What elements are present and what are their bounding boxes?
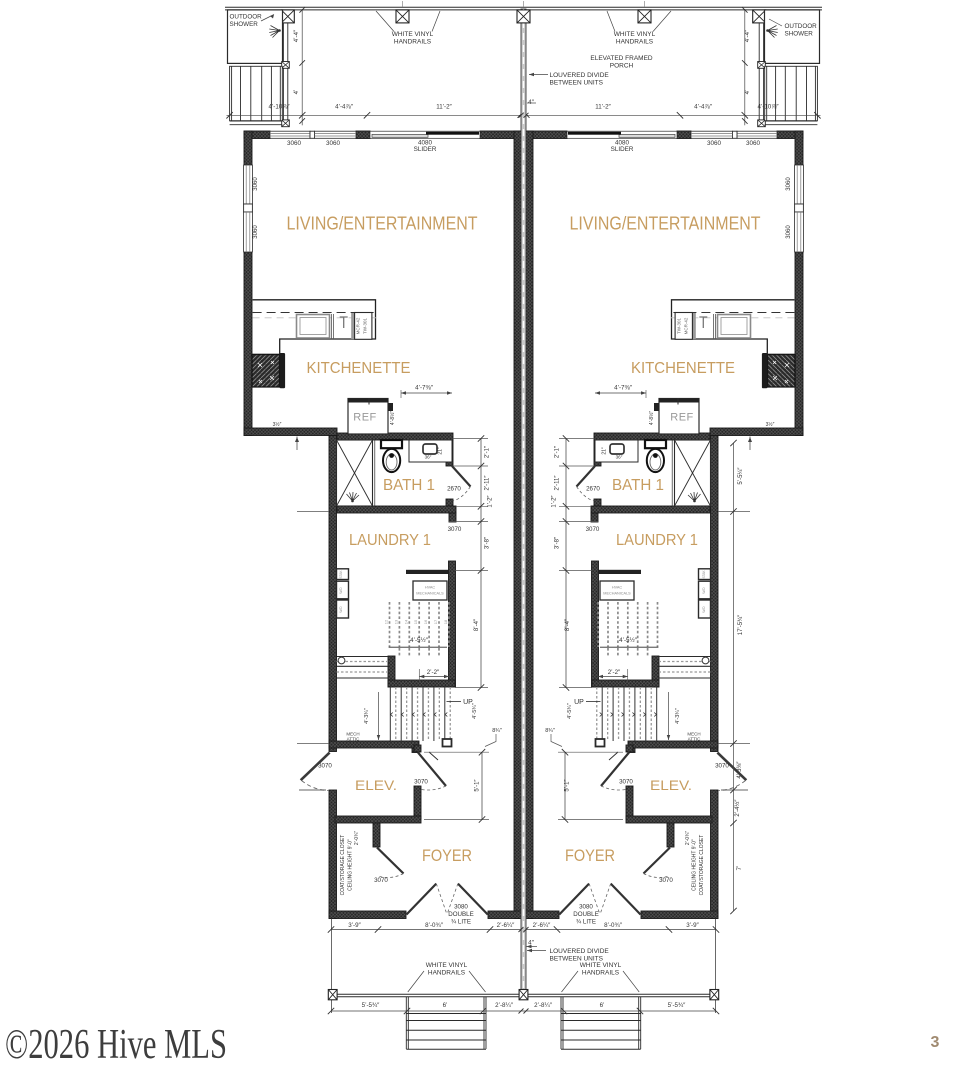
- svg-text:4’-7⅜″: 4’-7⅜″: [614, 385, 632, 392]
- svg-text:SHOWER: SHOWER: [785, 31, 814, 38]
- svg-text:4’: 4’: [744, 90, 751, 95]
- svg-text:3’-9″: 3’-9″: [686, 922, 699, 929]
- svg-text:REF: REF: [353, 412, 377, 424]
- svg-text:16: 16: [423, 619, 428, 624]
- svg-text:LOUVERED DIVIDE: LOUVERED DIVIDE: [550, 72, 610, 79]
- svg-text:4’-8½″: 4’-8½″: [648, 411, 655, 426]
- svg-text:HVAC: HVAC: [425, 586, 436, 590]
- svg-text:4’-8½″: 4’-8½″: [389, 411, 396, 426]
- svg-text:¾ LITE: ¾ LITE: [451, 919, 471, 926]
- svg-text:3’-9″: 3’-9″: [348, 922, 361, 929]
- svg-text:ATTIC: ATTIC: [347, 737, 360, 742]
- svg-text:8’-4″: 8’-4″: [565, 618, 571, 631]
- svg-text:2’-1″: 2’-1″: [485, 445, 491, 458]
- svg-text:SHOWER: SHOWER: [230, 21, 259, 28]
- svg-text:2’-2″: 2’-2″: [608, 669, 621, 676]
- svg-text:3060: 3060: [253, 225, 259, 239]
- svg-text:©2026 Hive MLS: ©2026 Hive MLS: [5, 1022, 227, 1068]
- svg-text:LIVING/ENTERTAINMENT: LIVING/ENTERTAINMENT: [287, 214, 478, 234]
- svg-text:12: 12: [384, 619, 389, 624]
- svg-text:4’-5½″: 4’-5½″: [619, 637, 637, 644]
- svg-text:1’-2″: 1’-2″: [552, 495, 558, 508]
- svg-text:ELEVATED FRAMED: ELEVATED FRAMED: [590, 55, 653, 62]
- svg-text:3060: 3060: [326, 140, 341, 147]
- svg-text:3060: 3060: [786, 225, 792, 239]
- svg-text:11’-2″: 11’-2″: [595, 104, 611, 111]
- svg-text:3070: 3070: [374, 877, 388, 884]
- svg-text:WHITE VINYL: WHITE VINYL: [392, 31, 434, 38]
- svg-text:OUTDOOR: OUTDOOR: [230, 14, 263, 21]
- svg-text:3060: 3060: [786, 177, 792, 191]
- svg-text:TW-301: TW-301: [363, 318, 368, 334]
- svg-text:CEILING HEIGHT 9’-0″: CEILING HEIGHT 9’-0″: [348, 839, 354, 891]
- svg-text:FOYER: FOYER: [565, 846, 615, 865]
- svg-text:BATH 1: BATH 1: [383, 477, 435, 494]
- svg-text:COAT/STORAGE CLOSET: COAT/STORAGE CLOSET: [699, 835, 705, 896]
- svg-text:2’-0¾″: 2’-0¾″: [685, 831, 691, 846]
- svg-text:6’: 6’: [600, 1002, 605, 1009]
- svg-text:3070: 3070: [448, 526, 462, 533]
- svg-text:3½″: 3½″: [273, 421, 282, 428]
- svg-text:2’-2″: 2’-2″: [427, 669, 440, 676]
- svg-text:2’-4½″: 2’-4½″: [734, 799, 741, 817]
- svg-text:3070: 3070: [586, 526, 600, 533]
- svg-text:5’-5¾″: 5’-5¾″: [362, 1002, 380, 1009]
- svg-text:ELEV.: ELEV.: [355, 777, 397, 793]
- svg-text:2’-1″: 2’-1″: [555, 445, 561, 458]
- svg-text:WHITE VINYL: WHITE VINYL: [426, 962, 468, 969]
- svg-text:UP: UP: [574, 699, 584, 706]
- svg-text:4’-5½″: 4’-5½″: [410, 637, 428, 644]
- svg-text:4’-4⅞″: 4’-4⅞″: [694, 104, 712, 111]
- svg-text:2670: 2670: [447, 486, 461, 493]
- svg-text:1’-2″: 1’-2″: [488, 495, 494, 508]
- svg-text:4’-10⅞″: 4’-10⅞″: [268, 104, 290, 111]
- svg-text:6’: 6’: [443, 1002, 448, 1009]
- svg-text:WHITE VINYL: WHITE VINYL: [614, 31, 656, 38]
- svg-text:BETWEEN UNITS: BETWEEN UNITS: [550, 80, 604, 87]
- svg-text:3080: 3080: [454, 904, 468, 911]
- svg-text:2’-0¾″: 2’-0¾″: [354, 831, 360, 846]
- svg-text:HANDRAILS: HANDRAILS: [616, 39, 654, 46]
- svg-text:36″: 36″: [425, 455, 432, 460]
- svg-text:4’-5¾″: 4’-5¾″: [472, 703, 478, 719]
- svg-text:14: 14: [403, 619, 408, 624]
- svg-text:21″: 21″: [602, 447, 608, 455]
- svg-text:2’-8¼″: 2’-8¼″: [534, 1002, 552, 1009]
- svg-text:5’-5¾″: 5’-5¾″: [668, 1002, 686, 1009]
- svg-text:SLIDER: SLIDER: [414, 146, 437, 153]
- svg-text:KITCHENETTE: KITCHENETTE: [631, 360, 735, 377]
- svg-text:DOUBLE: DOUBLE: [448, 911, 473, 918]
- svg-text:COAT/STORAGE CLOSET: COAT/STORAGE CLOSET: [340, 835, 346, 896]
- svg-text:13: 13: [393, 619, 398, 624]
- svg-text:11’-2″: 11’-2″: [436, 104, 452, 111]
- svg-text:18: 18: [443, 619, 448, 624]
- svg-text:2’-6¼″: 2’-6¼″: [533, 922, 551, 929]
- svg-text:4’-4″: 4’-4″: [293, 29, 300, 42]
- svg-text:4’: 4’: [293, 90, 300, 95]
- svg-text:W/D: W/D: [702, 587, 706, 594]
- svg-text:3060: 3060: [746, 140, 761, 147]
- svg-text:4″: 4″: [528, 940, 534, 947]
- svg-text:ELEV.: ELEV.: [650, 777, 692, 793]
- svg-text:W/D: W/D: [702, 606, 706, 613]
- svg-text:LAUNDRY 1: LAUNDRY 1: [349, 532, 431, 549]
- svg-text:3’-8″: 3’-8″: [555, 536, 561, 549]
- svg-text:4’-7⅜″: 4’-7⅜″: [415, 385, 433, 392]
- svg-text:HVAC: HVAC: [612, 586, 623, 590]
- svg-text:PORCH: PORCH: [610, 63, 634, 70]
- svg-text:3060: 3060: [253, 177, 259, 191]
- svg-text:8¾″: 8¾″: [545, 728, 555, 734]
- svg-text:4’-4⅞″: 4’-4⅞″: [335, 104, 353, 111]
- svg-text:8’-0¾″: 8’-0¾″: [604, 922, 622, 929]
- svg-text:4’-3⅜″: 4’-3⅜″: [737, 761, 743, 779]
- svg-text:3½″: 3½″: [766, 421, 775, 428]
- svg-text:¾ LITE: ¾ LITE: [576, 919, 596, 926]
- svg-text:2670: 2670: [586, 486, 600, 493]
- svg-text:MECHANICALS: MECHANICALS: [603, 592, 631, 596]
- svg-text:5’-1″: 5’-1″: [475, 779, 481, 792]
- svg-text:STAK: STAK: [339, 570, 343, 579]
- svg-text:4’-4″: 4’-4″: [744, 29, 751, 42]
- svg-text:7’: 7’: [737, 866, 743, 871]
- svg-text:4’-3¾″: 4’-3¾″: [675, 708, 681, 724]
- svg-text:REF: REF: [670, 412, 694, 424]
- svg-text:3070: 3070: [619, 779, 633, 786]
- svg-text:CEILING HEIGHT 9’-0″: CEILING HEIGHT 9’-0″: [692, 839, 698, 891]
- svg-text:BATH 1: BATH 1: [612, 477, 664, 494]
- svg-text:3070: 3070: [715, 763, 729, 770]
- svg-text:SLIDER: SLIDER: [611, 146, 634, 153]
- svg-text:5’-1″: 5’-1″: [565, 779, 571, 792]
- svg-text:21″: 21″: [438, 447, 444, 455]
- svg-text:3080: 3080: [579, 904, 593, 911]
- svg-text:KITCHENETTE: KITCHENETTE: [307, 360, 411, 377]
- svg-text:MCR-42: MCR-42: [684, 317, 689, 334]
- svg-text:4″: 4″: [528, 99, 535, 106]
- svg-text:DOUBLE: DOUBLE: [573, 911, 598, 918]
- svg-text:2’-11″: 2’-11″: [555, 475, 561, 491]
- svg-text:W/D: W/D: [339, 587, 343, 594]
- svg-text:3070: 3070: [318, 763, 332, 770]
- svg-text:3060: 3060: [707, 140, 722, 147]
- svg-text:5’-5¼″: 5’-5¼″: [738, 467, 744, 485]
- svg-text:LIVING/ENTERTAINMENT: LIVING/ENTERTAINMENT: [570, 214, 761, 234]
- svg-text:LOUVERED DIVIDE: LOUVERED DIVIDE: [550, 948, 610, 955]
- svg-text:8¾″: 8¾″: [492, 728, 502, 734]
- svg-text:HANDRAILS: HANDRAILS: [394, 39, 432, 46]
- svg-text:MCR-42: MCR-42: [356, 317, 361, 334]
- svg-text:3060: 3060: [287, 140, 302, 147]
- svg-text:17: 17: [433, 619, 438, 624]
- svg-text:3’-8″: 3’-8″: [485, 536, 491, 549]
- svg-text:17’-5¾″: 17’-5¾″: [738, 614, 744, 635]
- svg-text:FOYER: FOYER: [422, 846, 472, 865]
- svg-text:3070: 3070: [659, 877, 673, 884]
- svg-text:TW-301: TW-301: [677, 318, 682, 334]
- svg-text:8’-4″: 8’-4″: [474, 618, 480, 631]
- svg-text:HANDRAILS: HANDRAILS: [582, 970, 620, 977]
- svg-text:2’-11″: 2’-11″: [485, 475, 491, 491]
- svg-text:2’-8¼″: 2’-8¼″: [495, 1002, 513, 1009]
- svg-text:4’-5¾″: 4’-5¾″: [567, 703, 573, 719]
- svg-text:8’-0¾″: 8’-0¾″: [425, 922, 443, 929]
- svg-text:4’-3¾″: 4’-3¾″: [364, 708, 370, 724]
- svg-text:3070: 3070: [414, 779, 428, 786]
- svg-text:HANDRAILS: HANDRAILS: [428, 970, 466, 977]
- svg-text:3: 3: [931, 1034, 940, 1051]
- svg-text:4’-10⅞″: 4’-10⅞″: [757, 104, 779, 111]
- svg-text:STAK: STAK: [702, 570, 706, 579]
- svg-text:2’-6¼″: 2’-6¼″: [497, 922, 515, 929]
- svg-text:36″: 36″: [616, 455, 623, 460]
- svg-text:15: 15: [413, 619, 418, 624]
- svg-text:OUTDOOR: OUTDOOR: [785, 23, 818, 30]
- svg-text:WHITE VINYL: WHITE VINYL: [580, 962, 622, 969]
- svg-text:ATTIC: ATTIC: [688, 737, 701, 742]
- svg-text:MECHANICALS: MECHANICALS: [416, 592, 444, 596]
- svg-text:LAUNDRY 1: LAUNDRY 1: [616, 532, 698, 549]
- svg-text:W/D: W/D: [339, 606, 343, 613]
